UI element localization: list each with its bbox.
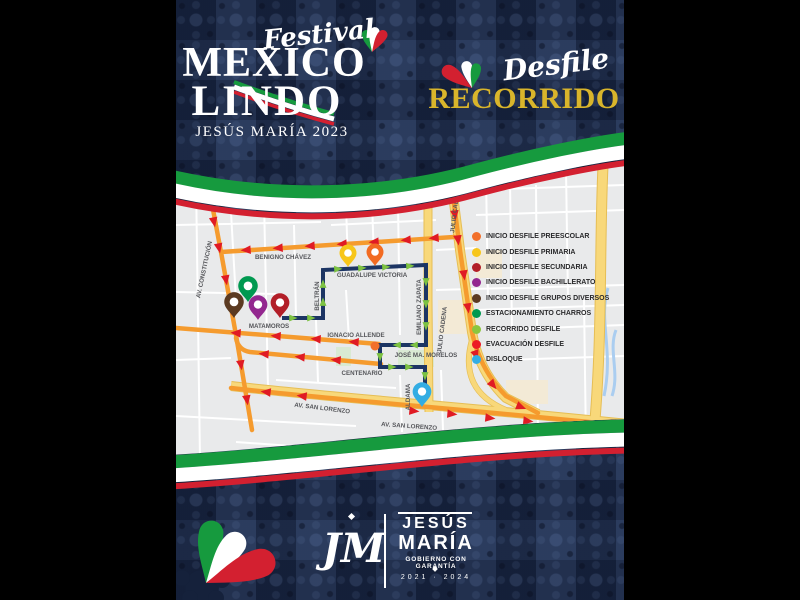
legend-item: INICIO DESFILE SECUNDARIA — [472, 260, 624, 275]
legend-item: DISLOQUE — [472, 352, 624, 367]
street-label-morelos: JOSÉ MA. MORELOS — [395, 351, 458, 359]
street-label-zapata: EMILIANO ZAPATA — [416, 279, 423, 335]
street-label-aldama: ALDAMA — [405, 383, 412, 410]
legend-dot — [472, 263, 481, 272]
legend-dot — [472, 278, 481, 287]
poster-subtitle: JESÚS MARÍA 2023 — [182, 124, 362, 141]
legend-item: INICIO DESFILE PREESCOLAR — [472, 229, 624, 244]
street-label-guadalupe: GUADALUPE VICTORIA — [337, 272, 408, 279]
legend-dot — [472, 325, 481, 334]
legend-dot — [472, 355, 481, 364]
screenshot-stage: BENIGNO CHÁVEZ GUADALUPE VICTORIA BELTRÁ… — [0, 0, 800, 600]
street-label-allende: IGNACIO ALLENDE — [327, 332, 384, 339]
legend-label: ESTACIONAMIENTO CHARROS — [486, 310, 591, 317]
logo-rule — [398, 512, 472, 514]
legend-item: RECORRIDO DESFILE — [472, 321, 624, 336]
legend-label: INICIO DESFILE GRUPOS DIVERSOS — [486, 295, 609, 302]
legend-label: INICIO DESFILE SECUNDARIA — [486, 264, 588, 271]
legend-item: ESTACIONAMIENTO CHARROS — [472, 306, 624, 321]
legend-dot — [472, 232, 481, 241]
legend-label: RECORRIDO DESFILE — [486, 326, 560, 333]
legend-dot — [472, 248, 481, 257]
festival-poster: BENIGNO CHÁVEZ GUADALUPE VICTORIA BELTRÁ… — [176, 0, 624, 600]
recorrido-title: RECORRIDO — [424, 82, 624, 116]
municipality-name-line1: JESÚS — [392, 515, 480, 533]
legend-label: DISLOQUE — [486, 356, 523, 363]
legend-item: INICIO DESFILE PRIMARIA — [472, 244, 624, 259]
government-years: 2021 · 2024 — [386, 574, 486, 581]
legend-label: EVACUACIÓN DESFILE — [486, 341, 564, 348]
street-label-beltran: BELTRÁN — [314, 281, 321, 311]
legend-label: INICIO DESFILE BACHILLERATO — [486, 279, 595, 286]
municipality-name-line2: MARÍA — [392, 532, 480, 554]
preescolar-start-dot — [371, 342, 380, 351]
street-label-centenario: CENTENARIO — [342, 370, 383, 377]
legend-item: EVACUACIÓN DESFILE — [472, 337, 624, 352]
jm-monogram: JM — [322, 516, 382, 586]
poster-title-lindo: LINDO — [176, 80, 358, 123]
legend-label: INICIO DESFILE PRIMARIA — [486, 249, 575, 256]
legend-label: INICIO DESFILE PREESCOLAR — [486, 233, 589, 240]
street-label-benigno: BENIGNO CHÁVEZ — [255, 254, 311, 261]
map-legend: INICIO DESFILE PREESCOLARINICIO DESFILE … — [472, 229, 624, 368]
legend-dot — [472, 294, 481, 303]
legend-item: INICIO DESFILE BACHILLERATO — [472, 275, 624, 290]
legend-dot — [472, 309, 481, 318]
street-label-matamoros: MATAMOROS — [249, 323, 289, 330]
legend-item: INICIO DESFILE GRUPOS DIVERSOS — [472, 291, 624, 306]
legend-dot — [472, 340, 481, 349]
